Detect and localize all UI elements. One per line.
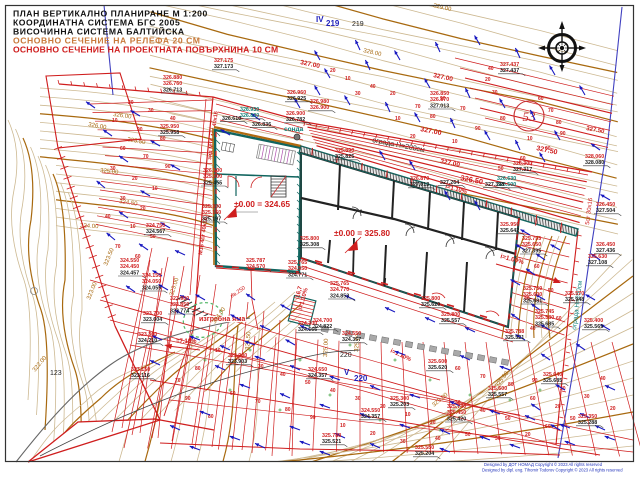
- svg-text:325.755: 325.755: [522, 236, 541, 242]
- svg-text:326.300: 326.300: [513, 161, 532, 167]
- svg-text:327.437: 327.437: [500, 68, 519, 74]
- svg-text:326.925: 326.925: [287, 96, 306, 102]
- svg-text:10: 10: [395, 116, 401, 122]
- svg-text:90: 90: [165, 164, 171, 170]
- svg-text:50: 50: [498, 166, 504, 172]
- svg-text:324.150: 324.150: [142, 273, 161, 279]
- svg-text:325.685: 325.685: [543, 378, 562, 384]
- svg-text:326.880: 326.880: [163, 75, 182, 81]
- svg-text:20: 20: [132, 176, 138, 182]
- svg-text:220: 220: [340, 352, 352, 359]
- svg-text:325.788: 325.788: [505, 329, 524, 335]
- svg-text:324.550: 324.550: [361, 408, 380, 414]
- svg-text:30: 30: [495, 436, 501, 442]
- svg-text:70: 70: [480, 374, 486, 380]
- svg-text:325.740: 325.740: [447, 404, 466, 410]
- svg-text:30: 30: [355, 91, 361, 97]
- svg-text:326.836: 326.836: [252, 122, 271, 128]
- svg-text:328.060: 328.060: [585, 154, 604, 160]
- svg-text:327.264: 327.264: [440, 180, 459, 186]
- svg-text:10: 10: [152, 186, 158, 192]
- svg-text:324.357: 324.357: [361, 414, 380, 420]
- svg-text:325.788: 325.788: [322, 433, 341, 439]
- svg-text:325.288: 325.288: [578, 420, 597, 426]
- svg-text:326.713: 326.713: [163, 87, 182, 93]
- svg-text:30: 30: [492, 90, 498, 96]
- svg-text:324.853: 324.853: [330, 293, 349, 299]
- svg-text:90: 90: [137, 127, 143, 133]
- svg-text:324.700: 324.700: [313, 318, 332, 324]
- svg-text:V: V: [344, 368, 350, 377]
- svg-text:325.948: 325.948: [565, 297, 584, 303]
- svg-text:80: 80: [160, 136, 166, 142]
- svg-text:325.630: 325.630: [588, 254, 607, 260]
- svg-text:324.550: 324.550: [288, 266, 307, 272]
- svg-text:325.557: 325.557: [441, 318, 460, 324]
- svg-text:40: 40: [488, 66, 494, 72]
- svg-text:325.640: 325.640: [543, 372, 562, 378]
- svg-text:326.450: 326.450: [596, 202, 615, 208]
- svg-text:325.958: 325.958: [160, 130, 179, 136]
- svg-text:327.013: 327.013: [410, 182, 429, 188]
- svg-text:323.300: 323.300: [138, 332, 157, 338]
- svg-text:IV: IV: [316, 15, 324, 24]
- svg-text:40: 40: [170, 116, 176, 122]
- svg-text:70: 70: [175, 378, 181, 384]
- svg-text:40: 40: [105, 214, 111, 220]
- svg-text:70: 70: [460, 106, 466, 112]
- svg-text:20: 20: [140, 206, 146, 212]
- svg-text:325.765: 325.765: [330, 281, 349, 287]
- svg-text:326.782: 326.782: [286, 117, 305, 123]
- svg-text:323.700: 323.700: [143, 311, 162, 317]
- svg-text:40: 40: [370, 84, 376, 90]
- svg-text:325.197: 325.197: [202, 216, 221, 222]
- svg-text:324.450: 324.450: [120, 264, 139, 270]
- svg-text:323.604: 323.604: [143, 317, 162, 323]
- svg-text:80: 80: [500, 116, 506, 122]
- svg-text:20: 20: [370, 431, 376, 437]
- svg-text:324.550: 324.550: [342, 331, 361, 337]
- svg-text:70: 70: [115, 244, 121, 250]
- svg-text:325.600: 325.600: [428, 359, 447, 365]
- svg-text:50: 50: [305, 380, 311, 386]
- svg-text:80: 80: [195, 366, 201, 372]
- svg-text:325.580: 325.580: [535, 315, 554, 321]
- svg-text:325.570: 325.570: [565, 291, 584, 297]
- svg-text:325.650: 325.650: [522, 242, 541, 248]
- svg-text:60: 60: [534, 264, 540, 270]
- svg-text:10: 10: [130, 224, 136, 230]
- svg-text:327.398: 327.398: [485, 182, 504, 188]
- svg-text:324.050: 324.050: [142, 279, 161, 285]
- svg-text:325.400: 325.400: [584, 318, 603, 324]
- svg-text:324.770: 324.770: [330, 287, 349, 293]
- svg-text:325.150: 325.150: [202, 210, 221, 216]
- svg-text:327.108: 327.108: [588, 260, 607, 266]
- svg-text:325.620: 325.620: [421, 302, 440, 308]
- svg-text:90: 90: [185, 396, 191, 402]
- svg-text:10: 10: [452, 139, 458, 145]
- svg-text:325.800: 325.800: [421, 296, 440, 302]
- svg-text:326.850: 326.850: [430, 91, 449, 97]
- svg-text:80: 80: [556, 120, 562, 126]
- svg-text:324.822: 324.822: [313, 324, 332, 330]
- svg-text:325.787: 325.787: [246, 258, 265, 264]
- svg-text:20: 20: [555, 404, 561, 410]
- svg-text:50: 50: [465, 432, 471, 438]
- svg-text:323.900: 323.900: [170, 296, 189, 302]
- svg-text:325.765: 325.765: [288, 260, 307, 266]
- svg-text:325.350: 325.350: [578, 414, 597, 420]
- svg-text:325.600: 325.600: [523, 292, 542, 298]
- svg-text:325.800: 325.800: [300, 236, 319, 242]
- svg-text:325.685: 325.685: [535, 321, 554, 327]
- svg-text:326.900: 326.900: [310, 105, 329, 111]
- svg-text:325.308: 325.308: [300, 242, 319, 248]
- svg-text:325.600: 325.600: [488, 386, 507, 392]
- svg-text:20: 20: [128, 100, 134, 106]
- svg-text:70: 70: [548, 108, 554, 114]
- svg-text:=7.10%: =7.10%: [176, 339, 197, 345]
- svg-text:327.395: 327.395: [522, 248, 541, 254]
- svg-text:Designed by dipl. eng. Tihomir: Designed by dipl. eng. Tihomir Todorov C…: [482, 468, 623, 473]
- svg-text:326.100: 326.100: [203, 168, 222, 174]
- svg-text:327.173: 327.173: [214, 64, 233, 70]
- svg-text:80: 80: [285, 407, 291, 413]
- svg-text:325.450: 325.450: [447, 410, 466, 416]
- svg-text:325.300: 325.300: [203, 174, 222, 180]
- svg-text:324.771: 324.771: [288, 272, 307, 278]
- svg-text:324.750: 324.750: [146, 223, 165, 229]
- svg-text:70: 70: [255, 399, 261, 405]
- svg-text:20: 20: [485, 77, 491, 83]
- svg-text:40: 40: [280, 372, 286, 378]
- svg-text:325.550: 325.550: [415, 445, 434, 451]
- svg-text:325.950: 325.950: [500, 222, 519, 228]
- svg-text:326.610: 326.610: [222, 116, 241, 122]
- svg-text:60: 60: [545, 424, 551, 430]
- svg-text:219: 219: [326, 19, 340, 28]
- svg-text:324.650: 324.650: [308, 367, 327, 373]
- svg-text:326.980: 326.980: [310, 99, 329, 105]
- svg-text:50: 50: [548, 288, 554, 294]
- svg-text:328.080: 328.080: [585, 160, 604, 166]
- svg-text:20: 20: [430, 420, 436, 426]
- svg-text:80: 80: [508, 382, 514, 388]
- svg-text:20: 20: [330, 68, 336, 74]
- svg-text:30: 30: [355, 396, 361, 402]
- svg-text:323.116: 323.116: [131, 373, 150, 379]
- svg-text:219: 219: [352, 21, 364, 28]
- svg-text:324.055: 324.055: [142, 285, 161, 291]
- svg-text:90: 90: [475, 126, 481, 132]
- svg-text:324.567: 324.567: [146, 229, 165, 235]
- svg-text:60: 60: [455, 366, 461, 372]
- svg-text:70: 70: [415, 104, 421, 110]
- svg-text:323.774: 323.774: [170, 308, 189, 314]
- svg-text:325.681: 325.681: [523, 298, 542, 304]
- svg-text:325.950: 325.950: [160, 124, 179, 130]
- svg-text:20: 20: [610, 406, 616, 412]
- svg-text:20: 20: [525, 432, 531, 438]
- svg-text:325.800: 325.800: [441, 312, 460, 318]
- svg-text:40: 40: [330, 388, 336, 394]
- svg-text:Designed by ДОТ НОМАД Copyrigh: Designed by ДОТ НОМАД Copyright © 2023 A…: [484, 462, 603, 467]
- svg-text:326.450: 326.450: [596, 242, 615, 248]
- svg-text:323.900: 323.900: [228, 353, 247, 359]
- svg-text:327.317: 327.317: [513, 167, 532, 173]
- svg-text:326.930: 326.930: [240, 107, 259, 113]
- svg-text:±0.00 = 325.80: ±0.00 = 325.80: [334, 228, 390, 238]
- svg-text:325.745: 325.745: [535, 309, 554, 315]
- svg-text:20: 20: [380, 404, 386, 410]
- svg-text:10: 10: [215, 348, 221, 354]
- svg-text:30: 30: [120, 196, 126, 202]
- svg-text:10: 10: [340, 423, 346, 429]
- svg-text:326.900: 326.900: [286, 111, 305, 117]
- svg-text:60: 60: [545, 146, 551, 152]
- svg-text:325.825: 325.825: [335, 154, 354, 160]
- svg-text:325.750: 325.750: [523, 286, 542, 292]
- svg-text:326.870: 326.870: [410, 176, 429, 182]
- svg-text:123: 123: [50, 370, 62, 377]
- svg-text:325.521: 325.521: [322, 439, 341, 445]
- svg-text:20: 20: [410, 134, 416, 140]
- svg-text:327.013: 327.013: [430, 103, 449, 109]
- svg-text:325.521: 325.521: [505, 335, 524, 341]
- svg-text:10: 10: [112, 118, 118, 124]
- svg-text:324.457: 324.457: [120, 270, 139, 276]
- svg-text:324.550: 324.550: [120, 258, 139, 264]
- svg-text:10: 10: [345, 76, 351, 82]
- svg-text:220: 220: [354, 374, 368, 383]
- svg-text:20: 20: [390, 91, 396, 97]
- svg-text:40: 40: [480, 408, 486, 414]
- svg-text:70: 70: [143, 154, 149, 160]
- svg-text:40: 40: [435, 436, 441, 442]
- svg-text:325.890: 325.890: [335, 148, 354, 154]
- svg-text:10: 10: [527, 136, 533, 142]
- svg-text:323.903: 323.903: [228, 359, 247, 365]
- svg-text:324.570: 324.570: [246, 264, 265, 270]
- svg-text:326.870: 326.870: [430, 97, 449, 103]
- svg-text:324.357: 324.357: [308, 373, 327, 379]
- svg-text:10: 10: [405, 412, 411, 418]
- svg-text:323.850: 323.850: [170, 302, 189, 308]
- svg-text:326.960: 326.960: [287, 90, 306, 96]
- svg-text:325.557: 325.557: [488, 392, 507, 398]
- svg-text:ОСНОВНО СЕЧЕНИЕ НА ПРОЕКТНАТА: ОСНОВНО СЕЧЕНИЕ НА ПРОЕКТНАТА ПОВЪРХНИНА…: [13, 45, 278, 55]
- svg-text:323.150: 323.150: [131, 367, 150, 373]
- svg-text:90: 90: [532, 378, 538, 384]
- svg-text:326.830: 326.830: [240, 113, 259, 119]
- svg-text:40: 40: [600, 376, 606, 382]
- svg-text:60: 60: [120, 146, 126, 152]
- svg-text:326.760: 326.760: [163, 81, 182, 87]
- svg-text:50: 50: [505, 416, 511, 422]
- svg-text:90: 90: [310, 415, 316, 421]
- svg-text:325.204: 325.204: [415, 451, 434, 457]
- svg-text:90: 90: [560, 131, 566, 137]
- svg-text:325.203: 325.203: [390, 402, 409, 408]
- svg-text:30: 30: [400, 439, 406, 445]
- svg-text:60: 60: [230, 391, 236, 397]
- svg-text:325.300: 325.300: [202, 204, 221, 210]
- svg-text:30: 30: [584, 394, 590, 400]
- svg-text:30: 30: [148, 108, 154, 114]
- svg-text:50: 50: [570, 416, 576, 422]
- svg-text:±0.00 = 324.65: ±0.00 = 324.65: [234, 199, 290, 209]
- svg-text:325.620: 325.620: [428, 365, 447, 371]
- svg-text:325.300: 325.300: [390, 396, 409, 402]
- svg-text:324.357: 324.357: [342, 337, 361, 343]
- svg-text:325.569: 325.569: [584, 324, 603, 330]
- svg-text:327.504: 327.504: [596, 208, 615, 214]
- svg-text:325.420: 325.420: [447, 416, 466, 422]
- svg-text:327.175: 327.175: [214, 58, 233, 64]
- svg-text:325.642: 325.642: [500, 228, 519, 234]
- svg-text:325.455: 325.455: [203, 180, 222, 186]
- svg-text:60: 60: [538, 96, 544, 102]
- svg-text:30: 30: [110, 166, 116, 172]
- svg-text:60: 60: [530, 396, 536, 402]
- svg-text:сонда: сонда: [284, 126, 304, 133]
- svg-text:60: 60: [556, 316, 562, 322]
- svg-text:324.210: 324.210: [138, 338, 157, 344]
- svg-text:327.437: 327.437: [500, 62, 519, 68]
- svg-text:80: 80: [430, 114, 436, 120]
